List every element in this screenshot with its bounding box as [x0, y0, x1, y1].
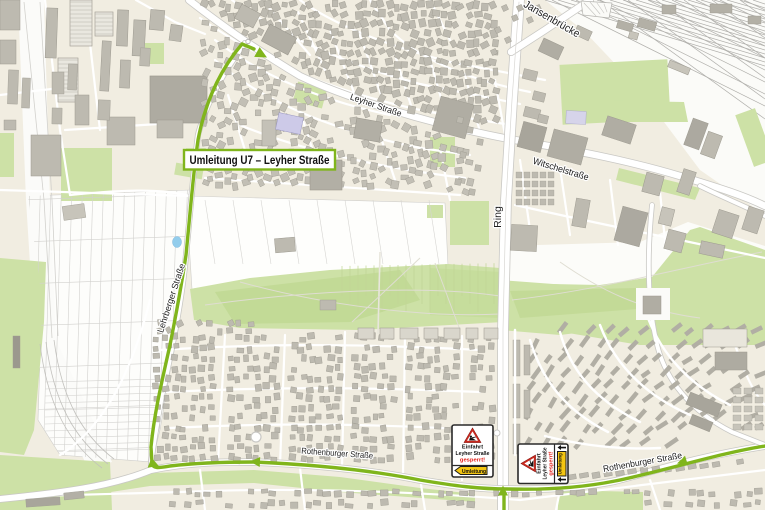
svg-text:Einfahrt: Einfahrt: [462, 445, 483, 451]
svg-text:Umleitung: Umleitung: [558, 453, 563, 474]
svg-text:Ring: Ring: [492, 206, 504, 228]
svg-text:Leyher Straße: Leyher Straße: [456, 451, 490, 457]
svg-text:gesperrt!: gesperrt!: [549, 451, 555, 475]
svg-text:Umleitung U7 – Leyher Straße: Umleitung U7 – Leyher Straße: [190, 153, 330, 167]
svg-text:Umleitung: Umleitung: [462, 469, 486, 475]
svg-text:gesperrt!: gesperrt!: [460, 458, 485, 464]
